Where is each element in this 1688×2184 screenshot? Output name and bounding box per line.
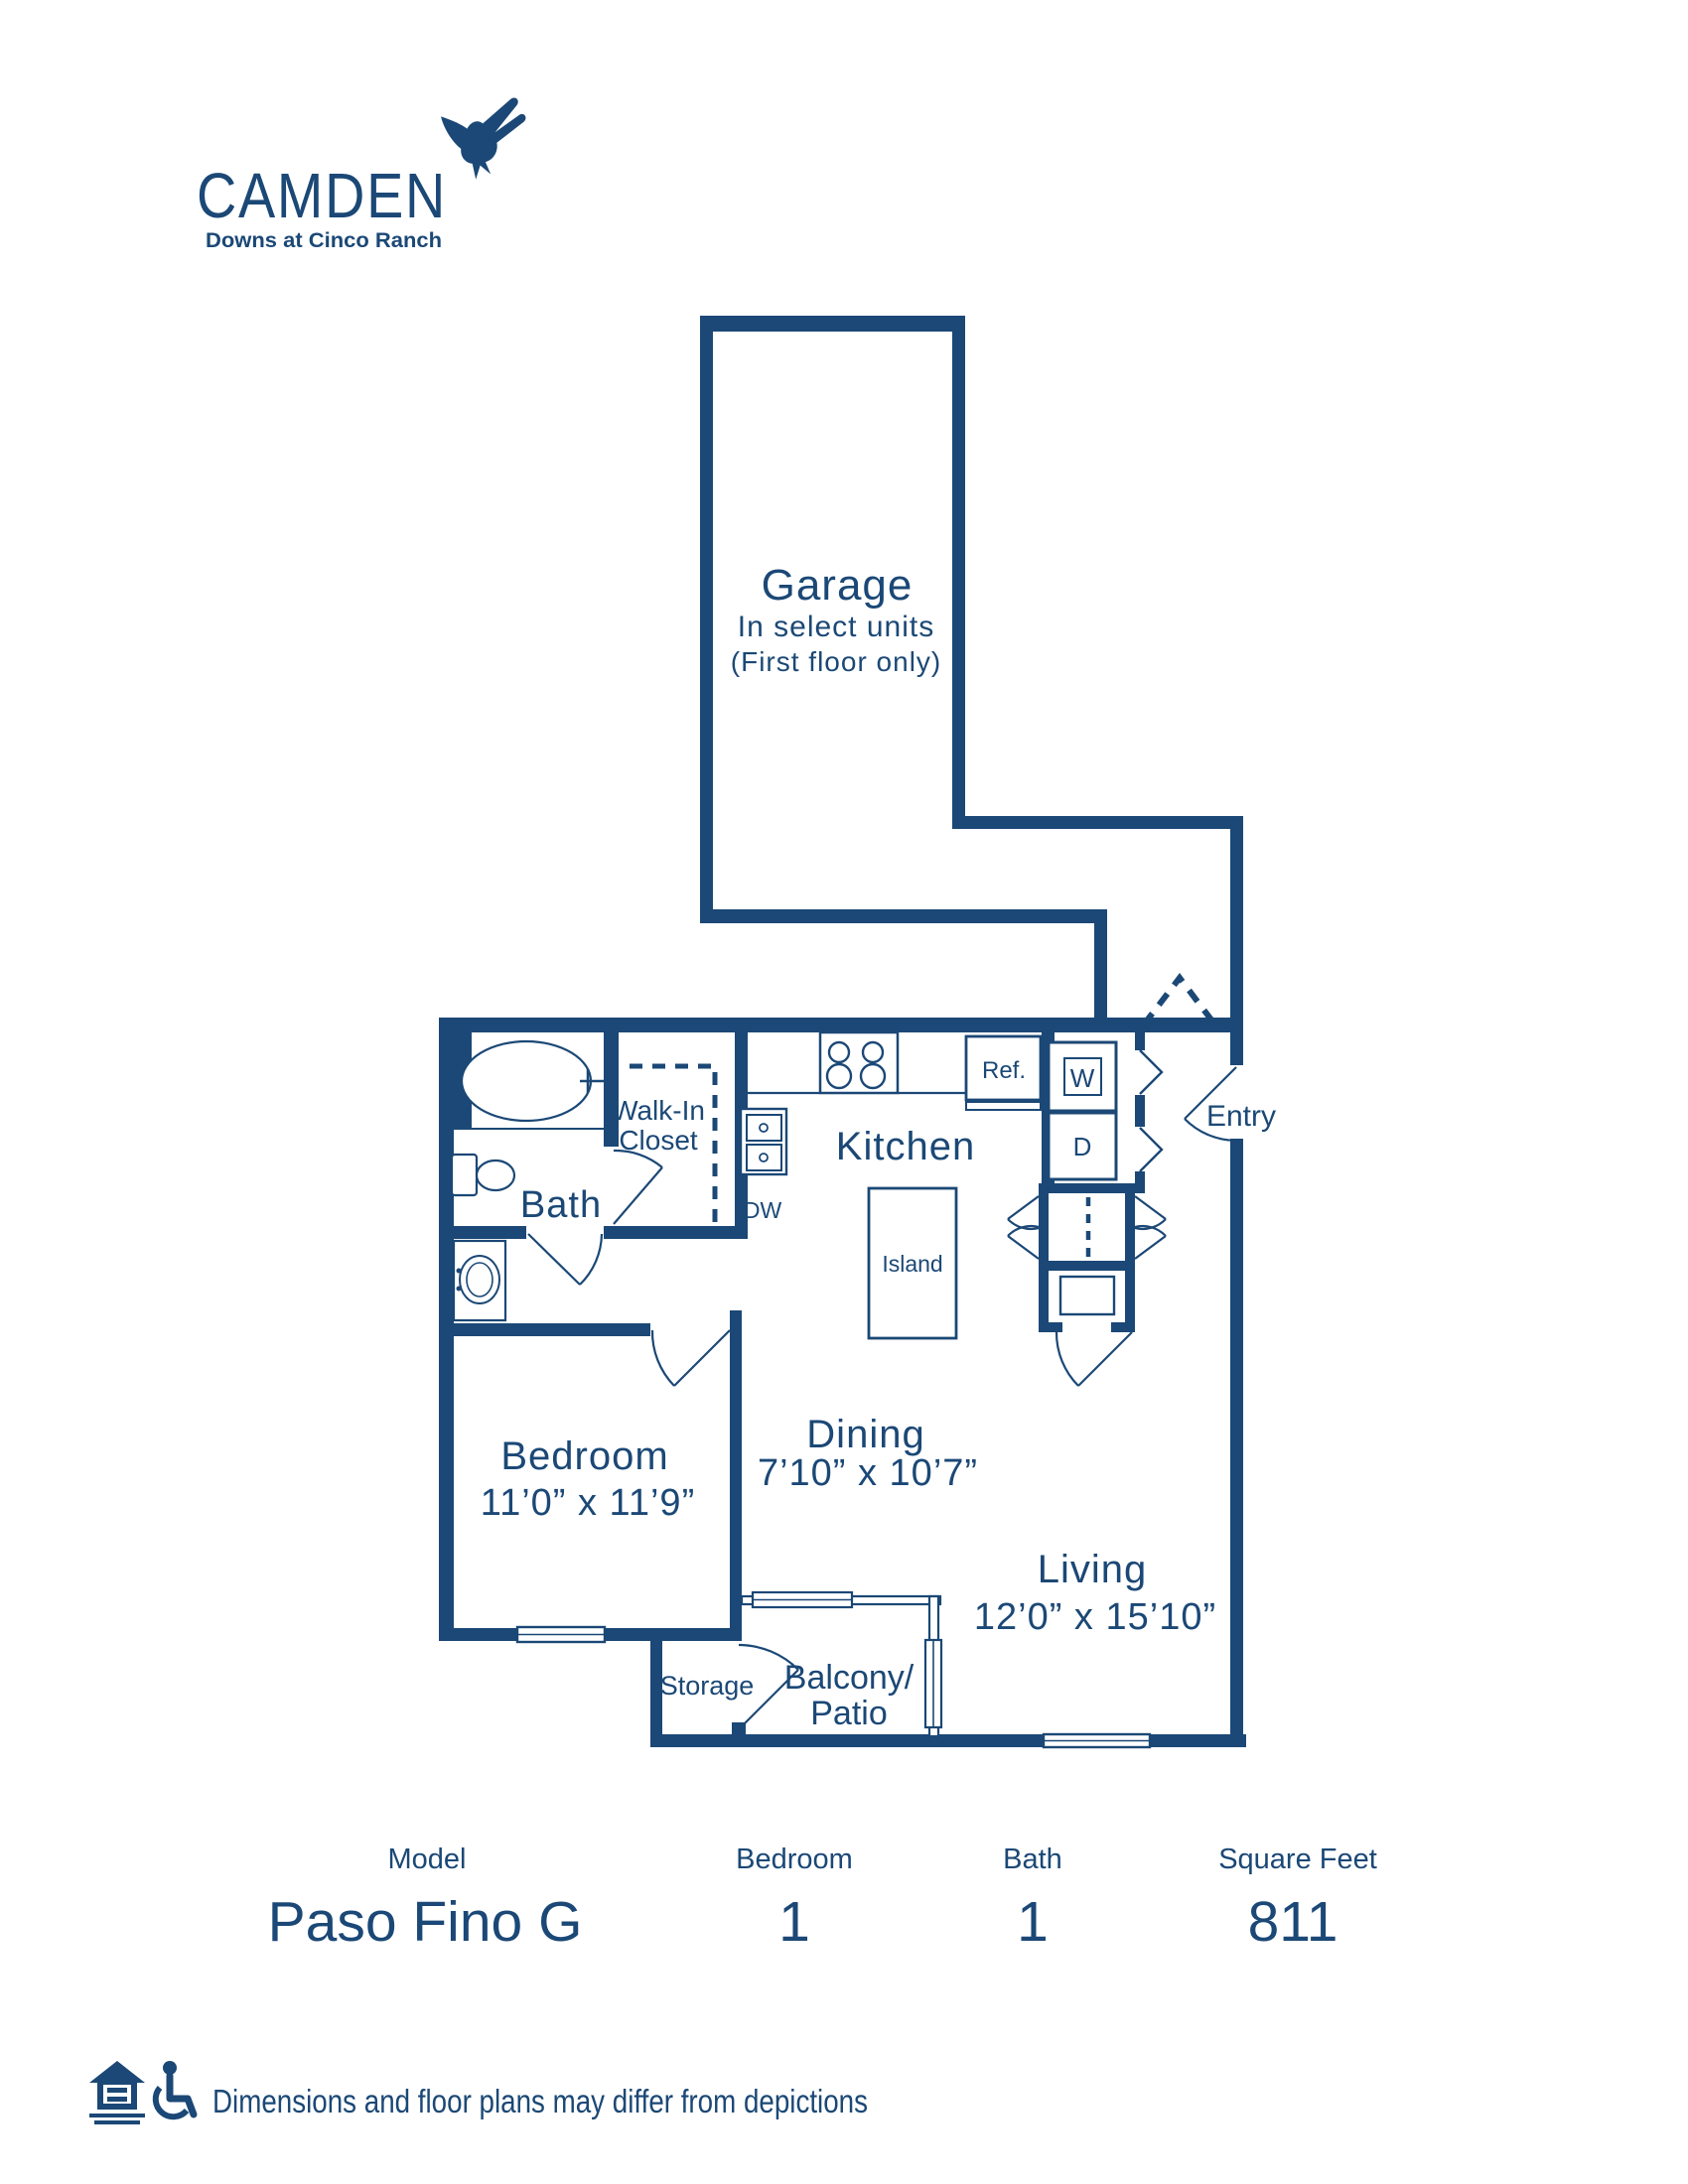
bath-label: Bath (520, 1184, 602, 1226)
washer-label: W (1070, 1063, 1095, 1093)
garage-label: Garage (762, 561, 914, 610)
summary-label-bedroom: Bedroom (736, 1843, 853, 1875)
summary-label-sqft: Square Feet (1218, 1843, 1377, 1875)
dw-label: DW (744, 1197, 782, 1223)
summary-value-bedroom: 1 (778, 1890, 810, 1954)
garage-note2: (First floor only) (731, 646, 941, 677)
bedroom-door (652, 1330, 730, 1386)
bathtub (462, 1041, 591, 1121)
storage-label: Storage (660, 1671, 755, 1701)
summary-value-model: Paso Fino G (268, 1890, 583, 1954)
bedroom-label: Bedroom (500, 1434, 668, 1478)
balcony-label: Balcony/ (784, 1659, 914, 1697)
walkin-closet-label2: Closet (619, 1125, 698, 1156)
disclaimer-text: Dimensions and floor plans may differ fr… (212, 2083, 868, 2119)
stove (820, 1032, 898, 1093)
logo-brand: CAMDEN (197, 160, 447, 231)
dining-dims: 7’10” x 10’7” (758, 1452, 978, 1494)
dining-label: Dining (806, 1413, 924, 1456)
linen-door (1135, 1196, 1166, 1229)
vanity-sink (454, 1241, 505, 1320)
toilet (452, 1155, 514, 1195)
summary-label-bath: Bath (1003, 1843, 1062, 1875)
summary-label-model: Model (388, 1843, 467, 1875)
closet-door (614, 1151, 662, 1224)
walkin-closet-label: Walk-In (612, 1095, 705, 1126)
stair-dashed-line (1144, 978, 1213, 1024)
summary-row: Model Paso Fino G Bedroom 1 Bath 1 Squar… (268, 1843, 1377, 1954)
water-heater (1060, 1277, 1114, 1314)
kitchen-sink (736, 1109, 786, 1174)
ref-label: Ref. (982, 1057, 1026, 1084)
living-dims: 12’0” x 15’10” (974, 1596, 1216, 1638)
accessible-icon (156, 2061, 194, 2116)
linen-door (1008, 1196, 1039, 1229)
dryer-label: D (1073, 1132, 1092, 1161)
garage-note: In select units (738, 611, 934, 643)
utility-door (1056, 1332, 1132, 1386)
island-label: Island (882, 1251, 942, 1277)
logo-community: Downs at Cinco Ranch (206, 229, 442, 252)
entry-label: Entry (1206, 1100, 1276, 1133)
bedroom-dims: 11’0” x 11’9” (481, 1482, 695, 1524)
balcony-label2: Patio (810, 1695, 888, 1732)
logo: CAMDEN Downs at Cinco Ranch (197, 97, 525, 252)
equal-housing-icon (89, 2061, 145, 2124)
footer: Dimensions and floor plans may differ fr… (89, 2061, 868, 2124)
floor-plan-svg: CAMDEN Downs at Cinco Ranch (0, 0, 1688, 2184)
linen-door (1008, 1226, 1039, 1259)
summary-value-bath: 1 (1017, 1890, 1049, 1954)
hummingbird-icon (441, 97, 525, 179)
kitchen-label: Kitchen (836, 1125, 975, 1168)
floorplan-page: CAMDEN Downs at Cinco Ranch (0, 0, 1688, 2184)
summary-value-sqft: 811 (1248, 1890, 1338, 1954)
linen-door (1135, 1226, 1166, 1259)
living-label: Living (1038, 1548, 1148, 1591)
bath-door (528, 1234, 602, 1285)
